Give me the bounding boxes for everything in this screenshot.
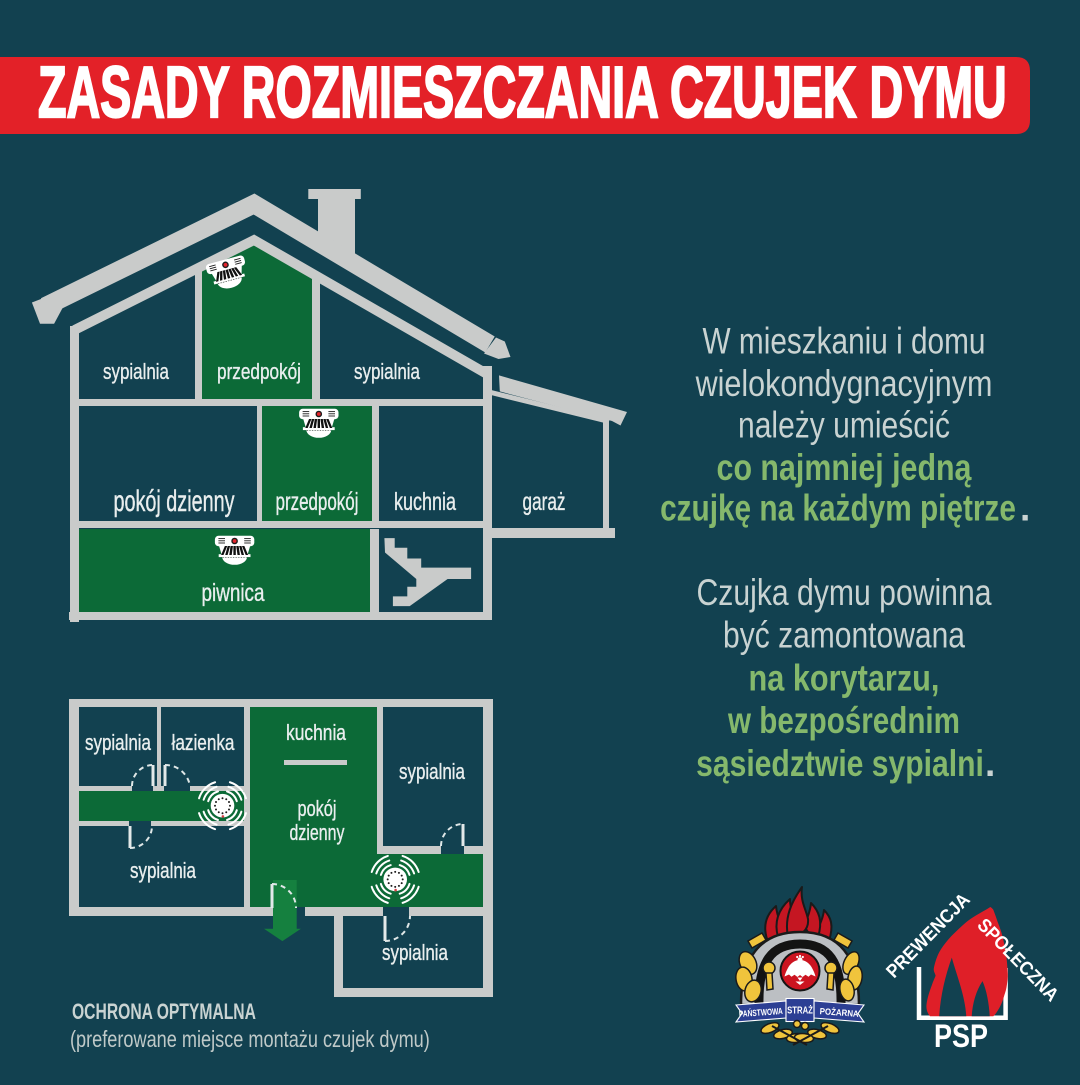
svg-text:sypialnia: sypialnia <box>399 760 465 785</box>
svg-text:na korytarzu,: na korytarzu, <box>749 658 940 699</box>
svg-text:sypialnia: sypialnia <box>85 731 151 756</box>
svg-text:przedpokój: przedpokój <box>276 488 359 516</box>
svg-text:należy umieścić: należy umieścić <box>738 406 950 447</box>
svg-text:pokój dzienny: pokój dzienny <box>114 485 235 518</box>
svg-text:(preferowane miejsce montażu c: (preferowane miejsce montażu czujek dymu… <box>70 1027 430 1053</box>
svg-text:sypialnia: sypialnia <box>130 859 196 884</box>
svg-text:Czujka dymu powinna: Czujka dymu powinna <box>697 572 992 614</box>
svg-text:czujkę na każdym piętrze: czujkę na każdym piętrze <box>660 489 1016 530</box>
svg-text:co najmniej jedną: co najmniej jedną <box>717 447 973 489</box>
svg-text:kuchnia: kuchnia <box>394 487 457 516</box>
svg-text:wielokondygnacyjnym: wielokondygnacyjnym <box>695 363 993 404</box>
svg-text:sąsiedztwie sypialni: sąsiedztwie sypialni <box>696 743 984 785</box>
svg-text:być zamontowana: być zamontowana <box>723 616 965 657</box>
svg-text:PSP: PSP <box>934 1019 988 1055</box>
svg-text:.: . <box>985 743 995 784</box>
svg-text:W mieszkaniu i domu: W mieszkaniu i domu <box>703 322 986 363</box>
svg-text:garaż: garaż <box>523 488 566 516</box>
svg-text:przedpokój: przedpokój <box>217 360 301 385</box>
svg-text:dzienny: dzienny <box>290 822 345 846</box>
svg-text:w bezpośrednim: w bezpośrednim <box>727 701 960 742</box>
svg-text:pokój: pokój <box>298 797 337 822</box>
svg-text:ZASADY ROZMIESZCZANIA CZUJEK D: ZASADY ROZMIESZCZANIA CZUJEK DYMU <box>38 52 1007 133</box>
svg-text:.: . <box>1020 488 1030 529</box>
svg-text:piwnica: piwnica <box>202 578 266 606</box>
svg-text:STRAŻ: STRAŻ <box>787 1005 813 1016</box>
svg-text:sypialnia: sypialnia <box>103 360 169 385</box>
svg-text:łazienka: łazienka <box>172 731 235 756</box>
svg-text:kuchnia: kuchnia <box>286 721 347 745</box>
svg-text:sypialnia: sypialnia <box>354 360 420 385</box>
svg-text:OCHRONA OPTYMALNA: OCHRONA OPTYMALNA <box>72 1001 256 1025</box>
svg-text:sypialnia: sypialnia <box>382 941 448 966</box>
